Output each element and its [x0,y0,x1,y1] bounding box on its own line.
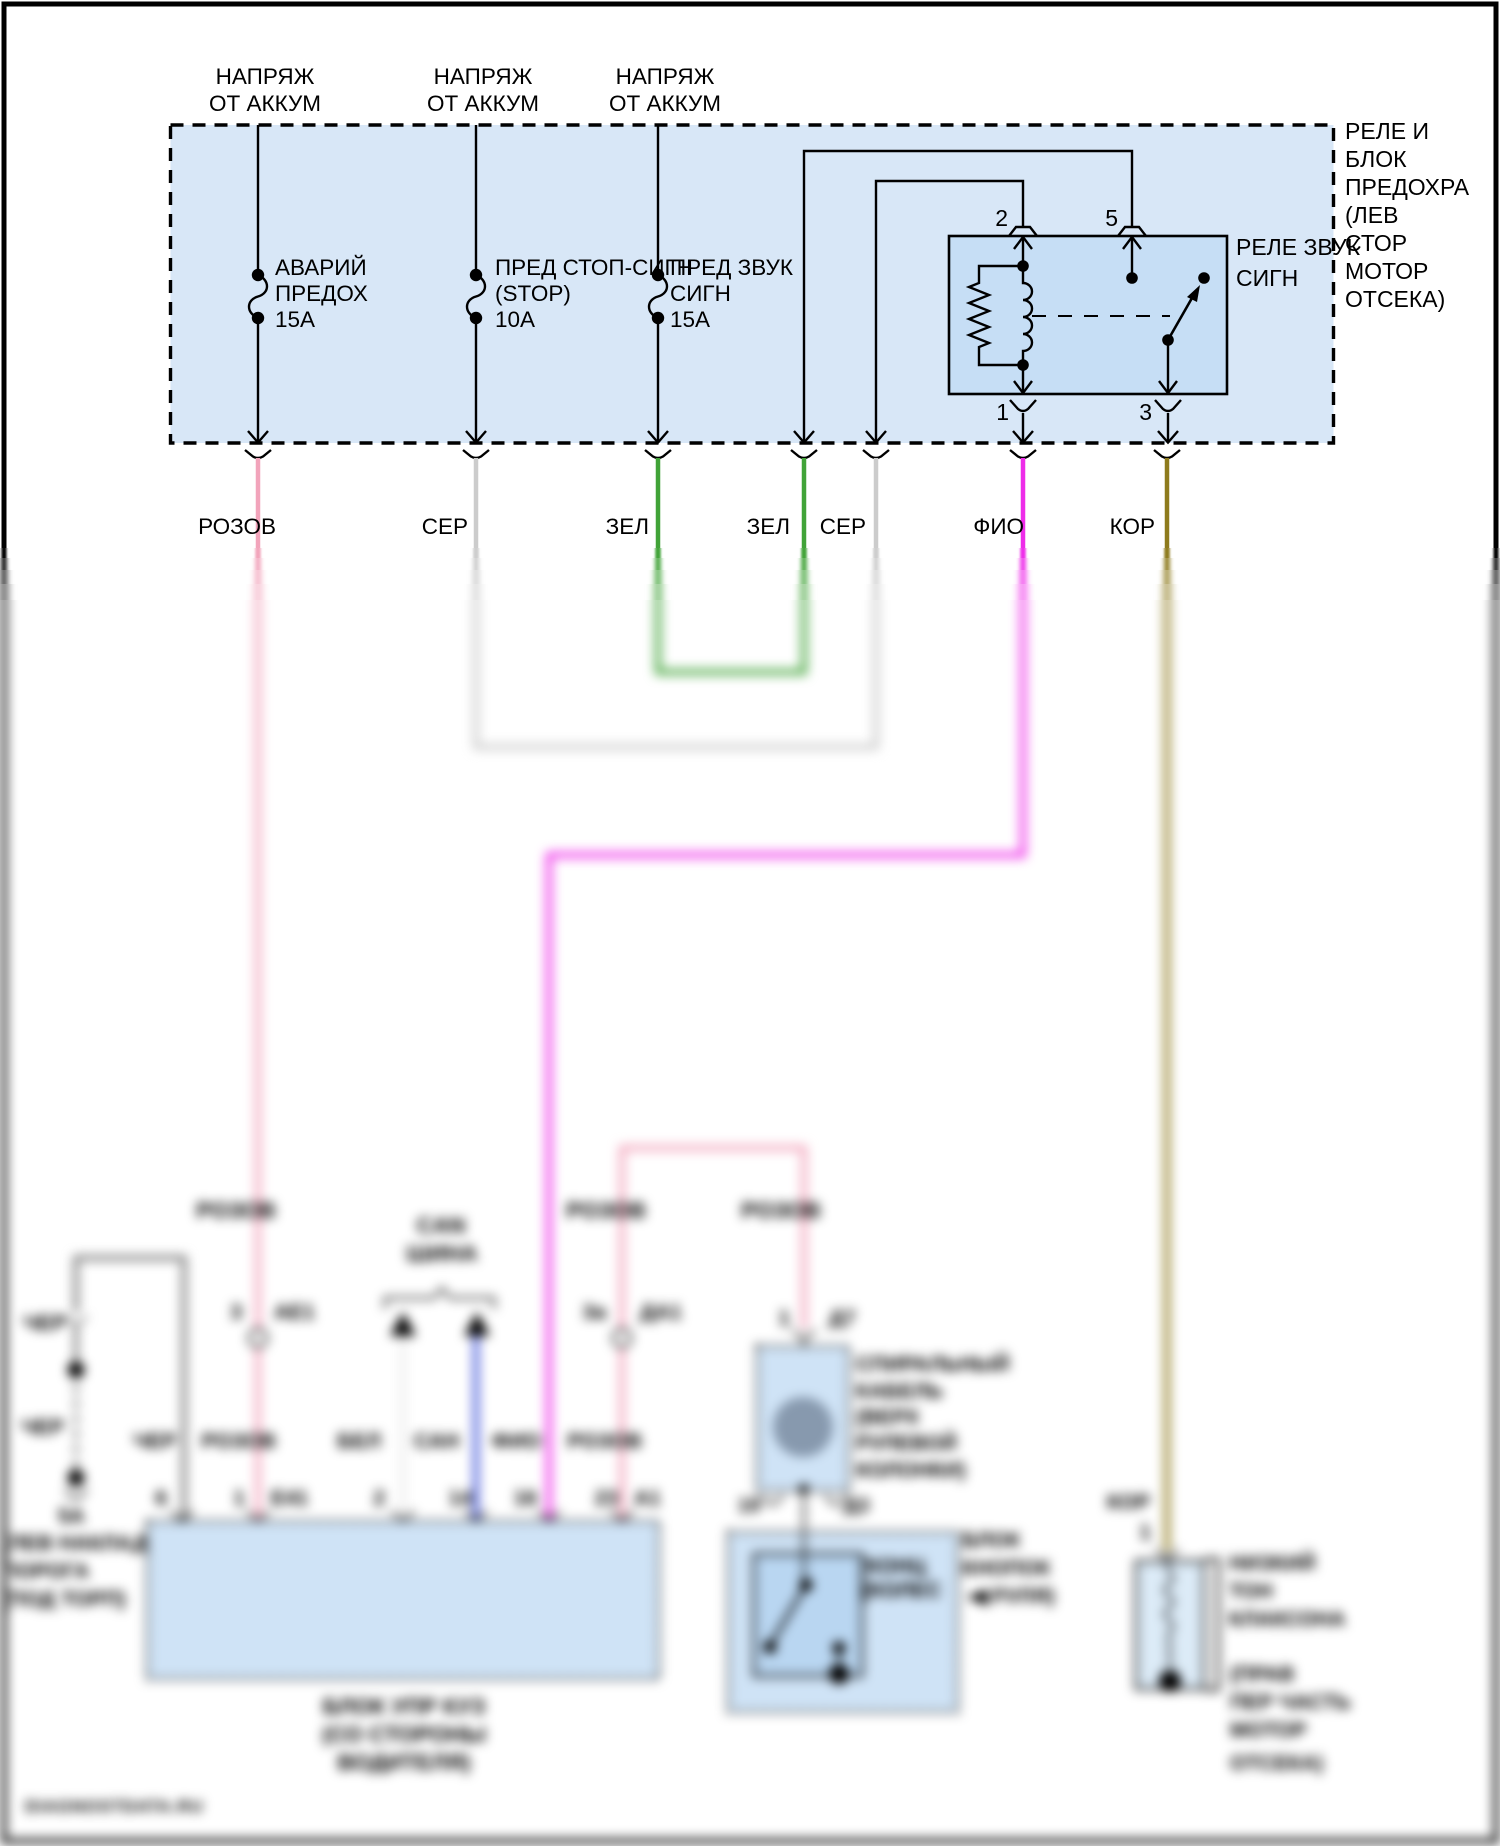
svg-text:РОЗОВ: РОЗОВ [741,1198,821,1223]
svg-text:19: 19 [738,1495,760,1517]
svg-text:ЗЕЛ: ЗЕЛ [747,514,790,539]
svg-text:ЗЕЛ: ЗЕЛ [606,514,649,539]
svg-text:(ЛЕВ НАКЛАД: (ЛЕВ НАКЛАД [2,1532,148,1555]
svg-text:КОР: КОР [1107,1491,1150,1514]
svg-text:15А: 15А [275,307,315,332]
svg-text:(STOP): (STOP) [495,281,571,306]
svg-text:DIAGNOSTDATA.RU: DIAGNOSTDATA.RU [25,1797,204,1816]
svg-text:БЛОК УПР КУЗ: БЛОК УПР КУЗ [323,1694,486,1719]
svg-text:НАПРЯЖ: НАПРЯЖ [216,64,315,89]
svg-text:САН: САН [414,1430,459,1453]
svg-text:РЕЛЕ ЗВУК: РЕЛЕ ЗВУК [1236,234,1361,260]
svg-text:CAN: CAN [417,1213,466,1238]
svg-text:ОТСЕКА): ОТСЕКА) [1345,286,1445,312]
svg-text:СЕР: СЕР [820,514,866,539]
svg-text:3: 3 [230,1301,242,1324]
svg-text:МОТОР: МОТОР [1345,258,1428,284]
svg-text:3: 3 [1139,399,1152,425]
svg-text:Е41: Е41 [271,1487,309,1510]
svg-text:1: 1 [778,1307,790,1330]
svg-text:БЛОК: БЛОК [1345,146,1407,172]
svg-text:КАБЕЛЬ: КАБЕЛЬ [856,1380,943,1403]
svg-text:15А: 15А [670,307,710,332]
svg-text:ФИО: ФИО [492,1430,541,1453]
svg-text:14: 14 [449,1487,473,1510]
svg-text:3а: 3а [583,1301,607,1324]
svg-text:КОЛОНКИ): КОЛОНКИ) [856,1459,966,1482]
svg-text:НАПРЯЖ: НАПРЯЖ [616,64,715,89]
svg-text:ДА1: ДА1 [640,1301,682,1324]
svg-text:БЕЛ: БЕЛ [337,1430,381,1453]
svg-text:РОЗОВ: РОЗОВ [198,514,276,539]
svg-text:СИГН: СИГН [1236,265,1298,291]
svg-text:(СО СТОРОНЫ: (СО СТОРОНЫ [322,1722,486,1747]
svg-text:ПРЕДОХ: ПРЕДОХ [275,281,368,306]
svg-text:КОР: КОР [1110,514,1155,539]
svg-text:2: 2 [373,1487,385,1510]
svg-text:НИЗКИЙ: НИЗКИЙ [1229,1551,1315,1575]
svg-text:ОТСЕКА): ОТСЕКА) [1230,1752,1323,1775]
svg-text:АЕ1: АЕ1 [274,1301,315,1324]
svg-text:А1: А1 [634,1487,661,1510]
svg-text:16: 16 [514,1487,537,1510]
svg-text:РЕЛЕ И: РЕЛЕ И [1345,118,1429,144]
svg-text:ОТ АККУМ: ОТ АККУМ [209,91,321,116]
svg-text:23: 23 [595,1487,618,1510]
svg-text:(ПРАВ: (ПРАВ [1230,1663,1295,1686]
svg-text:(ЛЕВ: (ЛЕВ [1345,202,1398,228]
svg-text:1: 1 [1139,1521,1151,1544]
svg-text:ФИО: ФИО [973,514,1024,539]
svg-text:ОТ АККУМ: ОТ АККУМ [427,91,539,116]
svg-text:5А: 5А [58,1505,85,1528]
svg-text:ЧЕР: ЧЕР [23,1312,66,1335]
svg-text:СИГН: СИГН [670,281,731,306]
svg-text:МОТОР: МОТОР [1230,1719,1306,1742]
svg-text:ТОН: ТОН [1229,1580,1273,1603]
svg-text:КЛАКСОНА: КЛАКСОНА [1229,1608,1346,1631]
svg-text:РУЛЕВОЙ: РУЛЕВОЙ [856,1431,957,1455]
svg-text:5: 5 [1105,205,1118,231]
svg-text:АВАРИЙ: АВАРИЙ [275,255,367,280]
svg-text:ПЕР ЧАСТЬ: ПЕР ЧАСТЬ [1230,1691,1351,1714]
svg-text:(КОЛЕС: (КОЛЕС [862,1579,942,1602]
svg-text:РОЗОВ: РОЗОВ [568,1430,642,1453]
svg-text:ОТ АККУМ: ОТ АККУМ [609,91,721,116]
svg-text:Д7: Д7 [829,1307,856,1330]
svg-text:2: 2 [995,205,1008,231]
svg-text:10А: 10А [495,307,535,332]
svg-text:БЛОК: БЛОК [962,1529,1021,1552]
svg-text:СПИРАЛЬНЫЙ: СПИРАЛЬНЫЙ [856,1352,1010,1376]
svg-text:ШИНА: ШИНА [406,1241,477,1266]
svg-text:СЕР: СЕР [422,514,468,539]
svg-text:1: 1 [233,1487,245,1510]
svg-text:(КОНЦ: (КОНЦ [859,1555,926,1578]
svg-text:(ПОД ТОРП): (ПОД ТОРП) [2,1588,126,1611]
svg-text:ЧЕР: ЧЕР [133,1430,176,1453]
svg-text:РОЗОВ: РОЗОВ [196,1198,276,1223]
svg-text:КНОПОК: КНОПОК [962,1557,1051,1580]
svg-text:ВОДИТЕЛЯ): ВОДИТЕЛЯ) [337,1750,470,1775]
svg-text:РОЗОВ: РОЗОВ [566,1198,646,1223]
svg-text:6: 6 [155,1487,167,1510]
svg-text:СТОР: СТОР [1345,230,1407,256]
svg-text:НАПРЯЖ: НАПРЯЖ [434,64,533,89]
svg-text:ПРЕДОХРА: ПРЕДОХРА [1345,174,1470,200]
svg-text:ЧЕР: ЧЕР [21,1416,64,1439]
svg-text:РОЗОВ: РОЗОВ [202,1430,276,1453]
svg-text:РУЛЯ): РУЛЯ) [992,1585,1055,1608]
svg-text:1: 1 [996,399,1009,425]
svg-text:ПОРОГА: ПОРОГА [2,1560,89,1583]
svg-text:ПРЕД ЗВУК: ПРЕД ЗВУК [670,255,793,280]
svg-text:(ВЕРХ: (ВЕРХ [856,1406,919,1429]
svg-text:Д3: Д3 [844,1495,869,1517]
